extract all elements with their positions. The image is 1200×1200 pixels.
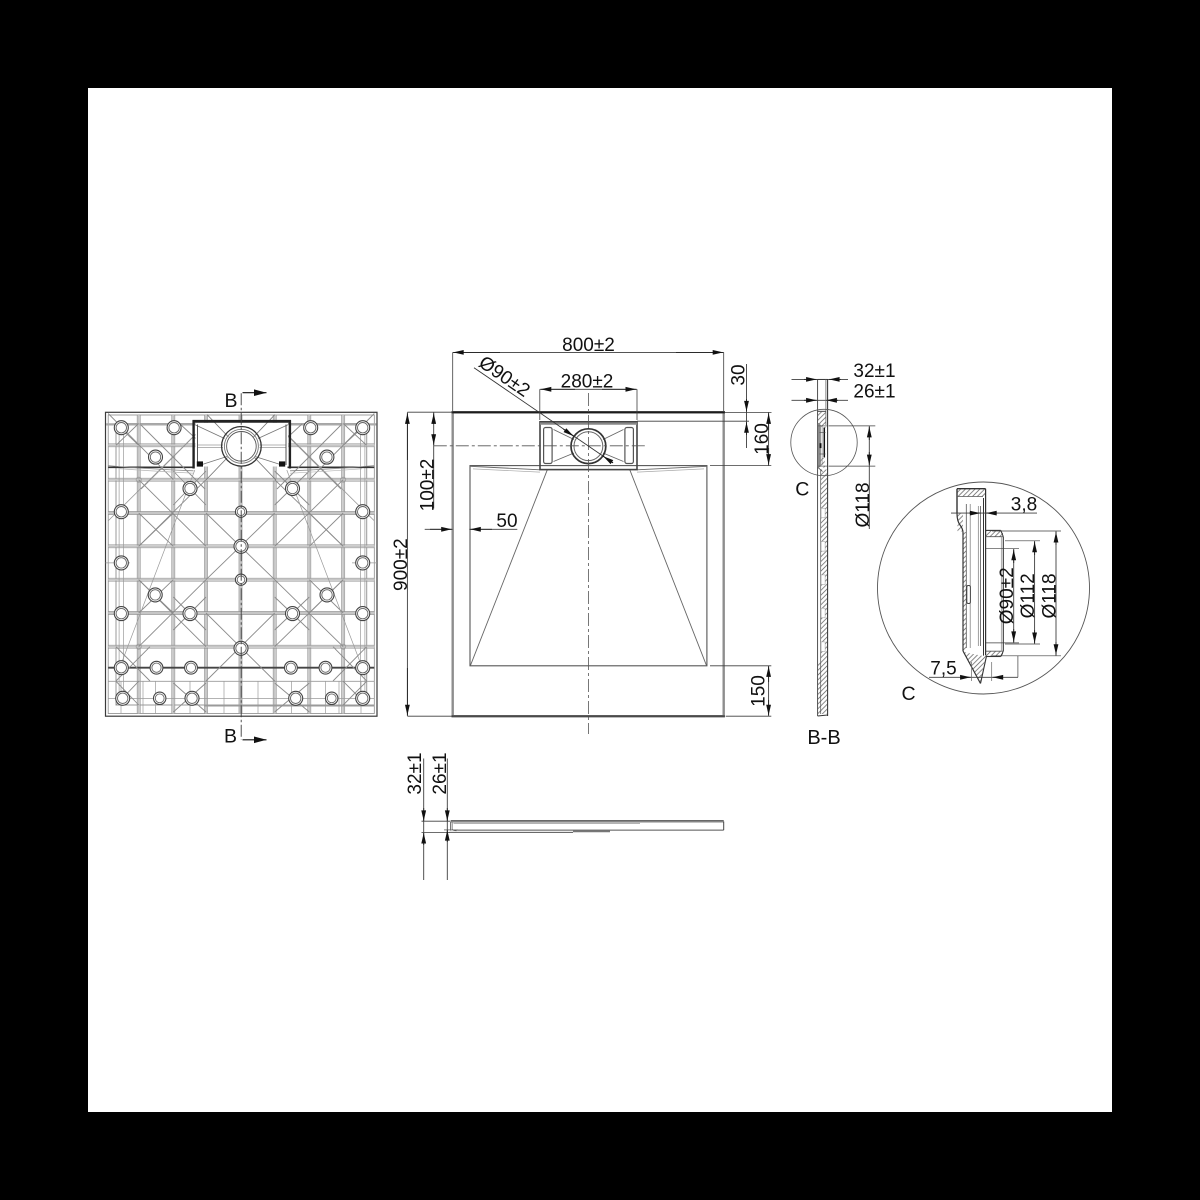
- svg-text:B-B: B-B: [807, 727, 840, 749]
- svg-text:Ø118: Ø118: [853, 482, 874, 527]
- svg-text:150: 150: [749, 675, 770, 707]
- svg-text:26±1: 26±1: [853, 382, 895, 403]
- svg-text:B: B: [224, 390, 237, 412]
- svg-text:Ø112: Ø112: [1018, 573, 1039, 618]
- svg-text:32±1: 32±1: [405, 752, 426, 794]
- svg-text:B: B: [224, 726, 237, 748]
- svg-text:Ø118: Ø118: [1040, 573, 1061, 618]
- svg-text:C: C: [795, 478, 809, 500]
- svg-text:160: 160: [752, 423, 773, 455]
- svg-text:Ø90±2: Ø90±2: [997, 567, 1018, 624]
- svg-text:7,5: 7,5: [930, 658, 956, 679]
- svg-text:32±1: 32±1: [853, 361, 895, 382]
- svg-text:C: C: [901, 683, 915, 705]
- svg-text:50: 50: [496, 511, 517, 532]
- svg-text:100±2: 100±2: [418, 459, 439, 512]
- svg-text:26±1: 26±1: [430, 752, 451, 794]
- svg-text:280±2: 280±2: [561, 372, 614, 393]
- svg-text:800±2: 800±2: [562, 335, 615, 356]
- svg-text:900±2: 900±2: [391, 538, 412, 591]
- svg-text:30: 30: [728, 364, 749, 385]
- svg-text:3,8: 3,8: [1011, 495, 1037, 516]
